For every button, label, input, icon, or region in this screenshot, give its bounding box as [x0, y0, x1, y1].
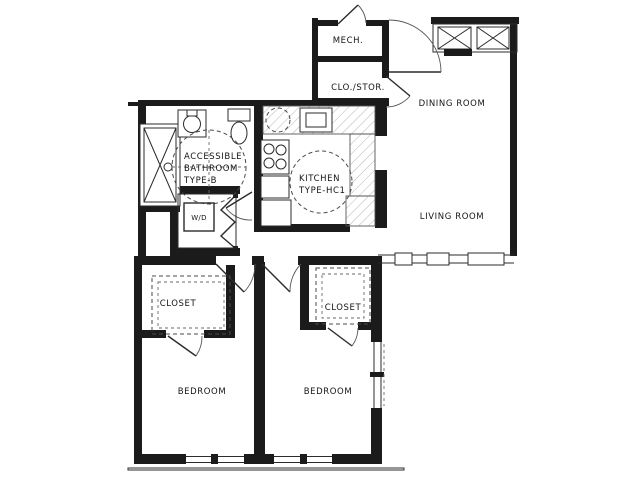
- br2-door-arc: [290, 264, 301, 292]
- shaft-solid-bar: [444, 49, 472, 56]
- wall-bottom-c: [332, 454, 382, 464]
- wall-bath-top: [138, 100, 318, 106]
- wall-mech-top-a: [312, 20, 338, 26]
- walls: [128, 17, 519, 470]
- room-label-bathroom-2: BATHROOM: [184, 164, 238, 174]
- clo-door-arc: [386, 96, 410, 107]
- room-label-closet1: CLOSET: [160, 299, 197, 309]
- shower-drain-icon: [164, 163, 172, 171]
- wall-mech-clo-divider: [318, 56, 382, 62]
- room-label-wd: W/D: [191, 214, 207, 222]
- kitchen-fixtures: [261, 106, 375, 226]
- closet1-door-leaf: [168, 336, 196, 356]
- wall-bedroom-top-c: [298, 256, 378, 265]
- window-mullion-br2: [300, 454, 307, 464]
- wall-wd-bottom: [170, 248, 240, 256]
- shaft-boxes: [433, 24, 517, 56]
- kitchen-cabinet: [261, 176, 289, 198]
- wd-closet-outline: [178, 194, 236, 248]
- faucet-icon: [187, 110, 197, 116]
- room-label-kitchen-2: TYPE-HC1: [298, 186, 345, 196]
- closet1-door-arc: [196, 336, 202, 356]
- floor-plan-page: W/D MECH. CLO./STOR. DINING ROOM LIVING …: [0, 0, 640, 480]
- wall-mech-left: [312, 18, 318, 106]
- window-frame-living-3: [468, 253, 504, 265]
- room-label-closet2: CLOSET: [325, 303, 362, 313]
- windows: [186, 253, 514, 464]
- kitchen-peninsula: [346, 196, 375, 226]
- wall-bottom-b: [244, 454, 274, 464]
- window-frame-living-1: [395, 253, 412, 265]
- room-labels: MECH. CLO./STOR. DINING ROOM LIVING ROOM…: [160, 36, 486, 397]
- mech-door-arc: [358, 5, 366, 23]
- window-mullion-br1: [211, 454, 218, 464]
- mech-door-leaf: [338, 5, 358, 24]
- wall-dining-right: [510, 24, 517, 256]
- laundry-closet: W/D: [178, 194, 236, 248]
- room-label-clo-stor: CLO./STOR.: [331, 83, 385, 93]
- closet-shelving-2: [316, 268, 370, 324]
- refrigerator-fixture: [261, 200, 291, 226]
- toilet-fixture: [231, 122, 247, 144]
- kitchen-sink-fixture: [300, 108, 332, 132]
- wall-closet2-left: [300, 258, 309, 328]
- room-label-bathroom-3: TYPE-B: [183, 176, 217, 186]
- kitchen-counter-right: [350, 134, 375, 196]
- wall-br2-right-upper: [371, 256, 382, 342]
- clo-door-leaf: [386, 76, 410, 96]
- wall-bedroom-top-a: [134, 256, 216, 265]
- floor-plan-drawing: W/D MECH. CLO./STOR. DINING ROOM LIVING …: [0, 0, 640, 480]
- room-label-bathroom-1: ACCESSIBLE: [184, 152, 242, 162]
- wall-dining-top: [431, 17, 519, 24]
- room-label-bedroom1: BEDROOM: [178, 387, 227, 397]
- window-frame-living-2: [427, 253, 449, 265]
- wall-bottom-a: [134, 454, 186, 464]
- closet2-door-leaf: [328, 328, 352, 346]
- room-label-mech: MECH.: [333, 36, 364, 46]
- toilet-tank: [228, 109, 250, 121]
- sill-line-bottom: [128, 468, 404, 470]
- room-label-bedroom2: BEDROOM: [304, 387, 353, 397]
- wall-kitchen-east-b: [375, 170, 387, 228]
- wall-between-bedrooms: [254, 262, 265, 460]
- room-label-kitchen-1: KITCHEN: [299, 174, 340, 184]
- wall-entry-right: [382, 20, 389, 78]
- window-mullion-br2-side: [370, 372, 384, 377]
- room-label-dining: DINING ROOM: [419, 99, 486, 109]
- wall-kitchen-east-a: [375, 104, 387, 136]
- wall-tick: [128, 102, 138, 106]
- br2-door-leaf: [262, 264, 290, 292]
- wall-left-exterior-lower: [134, 256, 142, 464]
- wall-closet2-bottom-a: [300, 322, 326, 330]
- closet2-door-arc: [352, 328, 358, 346]
- br1-door-arc: [244, 264, 255, 292]
- room-label-living: LIVING ROOM: [420, 212, 484, 222]
